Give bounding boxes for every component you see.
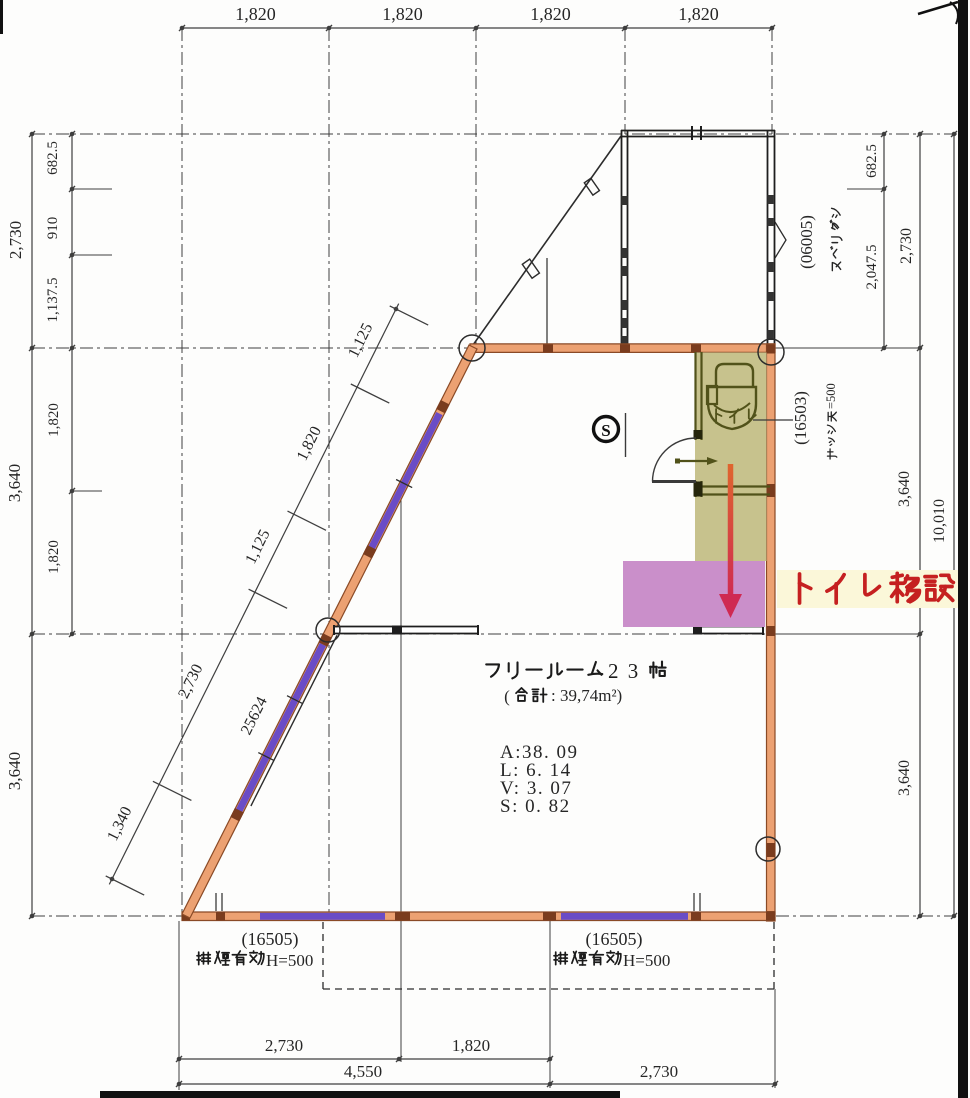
svg-text:3,640: 3,640 [5, 752, 24, 790]
svg-text:1,820: 1,820 [382, 4, 423, 24]
svg-text:1,820: 1,820 [452, 1036, 490, 1055]
svg-text:1,820: 1,820 [46, 540, 62, 574]
svg-text:(: ( [504, 687, 510, 706]
svg-text:(16505): (16505) [586, 929, 643, 950]
svg-text:2 3: 2 3 [608, 659, 640, 683]
svg-text:2,047.5: 2,047.5 [864, 245, 880, 290]
svg-text:S: 0. 82: S: 0. 82 [500, 796, 571, 817]
svg-text:682.5: 682.5 [864, 144, 880, 178]
svg-text:1,820: 1,820 [235, 4, 276, 24]
svg-text:910: 910 [45, 217, 61, 240]
svg-text:3,640: 3,640 [896, 760, 913, 796]
svg-text:3,640: 3,640 [5, 464, 24, 502]
svg-text:2,730: 2,730 [6, 221, 25, 259]
svg-text:(16503): (16503) [791, 391, 810, 445]
svg-text:(16505): (16505) [242, 929, 299, 950]
svg-text:10,010: 10,010 [931, 499, 948, 543]
svg-text:1,820: 1,820 [530, 4, 571, 24]
svg-text:2,730: 2,730 [265, 1036, 303, 1055]
svg-text:H=500: H=500 [623, 951, 670, 970]
svg-text:682.5: 682.5 [45, 141, 61, 175]
svg-text:1,820: 1,820 [678, 4, 719, 24]
svg-text:=500: =500 [824, 383, 838, 409]
svg-text:3,640: 3,640 [896, 471, 913, 507]
svg-text:: 39,74m²): : 39,74m²) [551, 686, 622, 705]
svg-text:2,730: 2,730 [640, 1062, 678, 1081]
svg-text:(06005): (06005) [797, 215, 816, 269]
svg-text:4,550: 4,550 [344, 1062, 382, 1081]
svg-text:1,820: 1,820 [46, 403, 62, 437]
svg-text:1,137.5: 1,137.5 [45, 278, 61, 323]
svg-text:H=500: H=500 [266, 951, 313, 970]
svg-text:S: S [601, 421, 610, 440]
svg-text:2,730: 2,730 [898, 228, 915, 264]
